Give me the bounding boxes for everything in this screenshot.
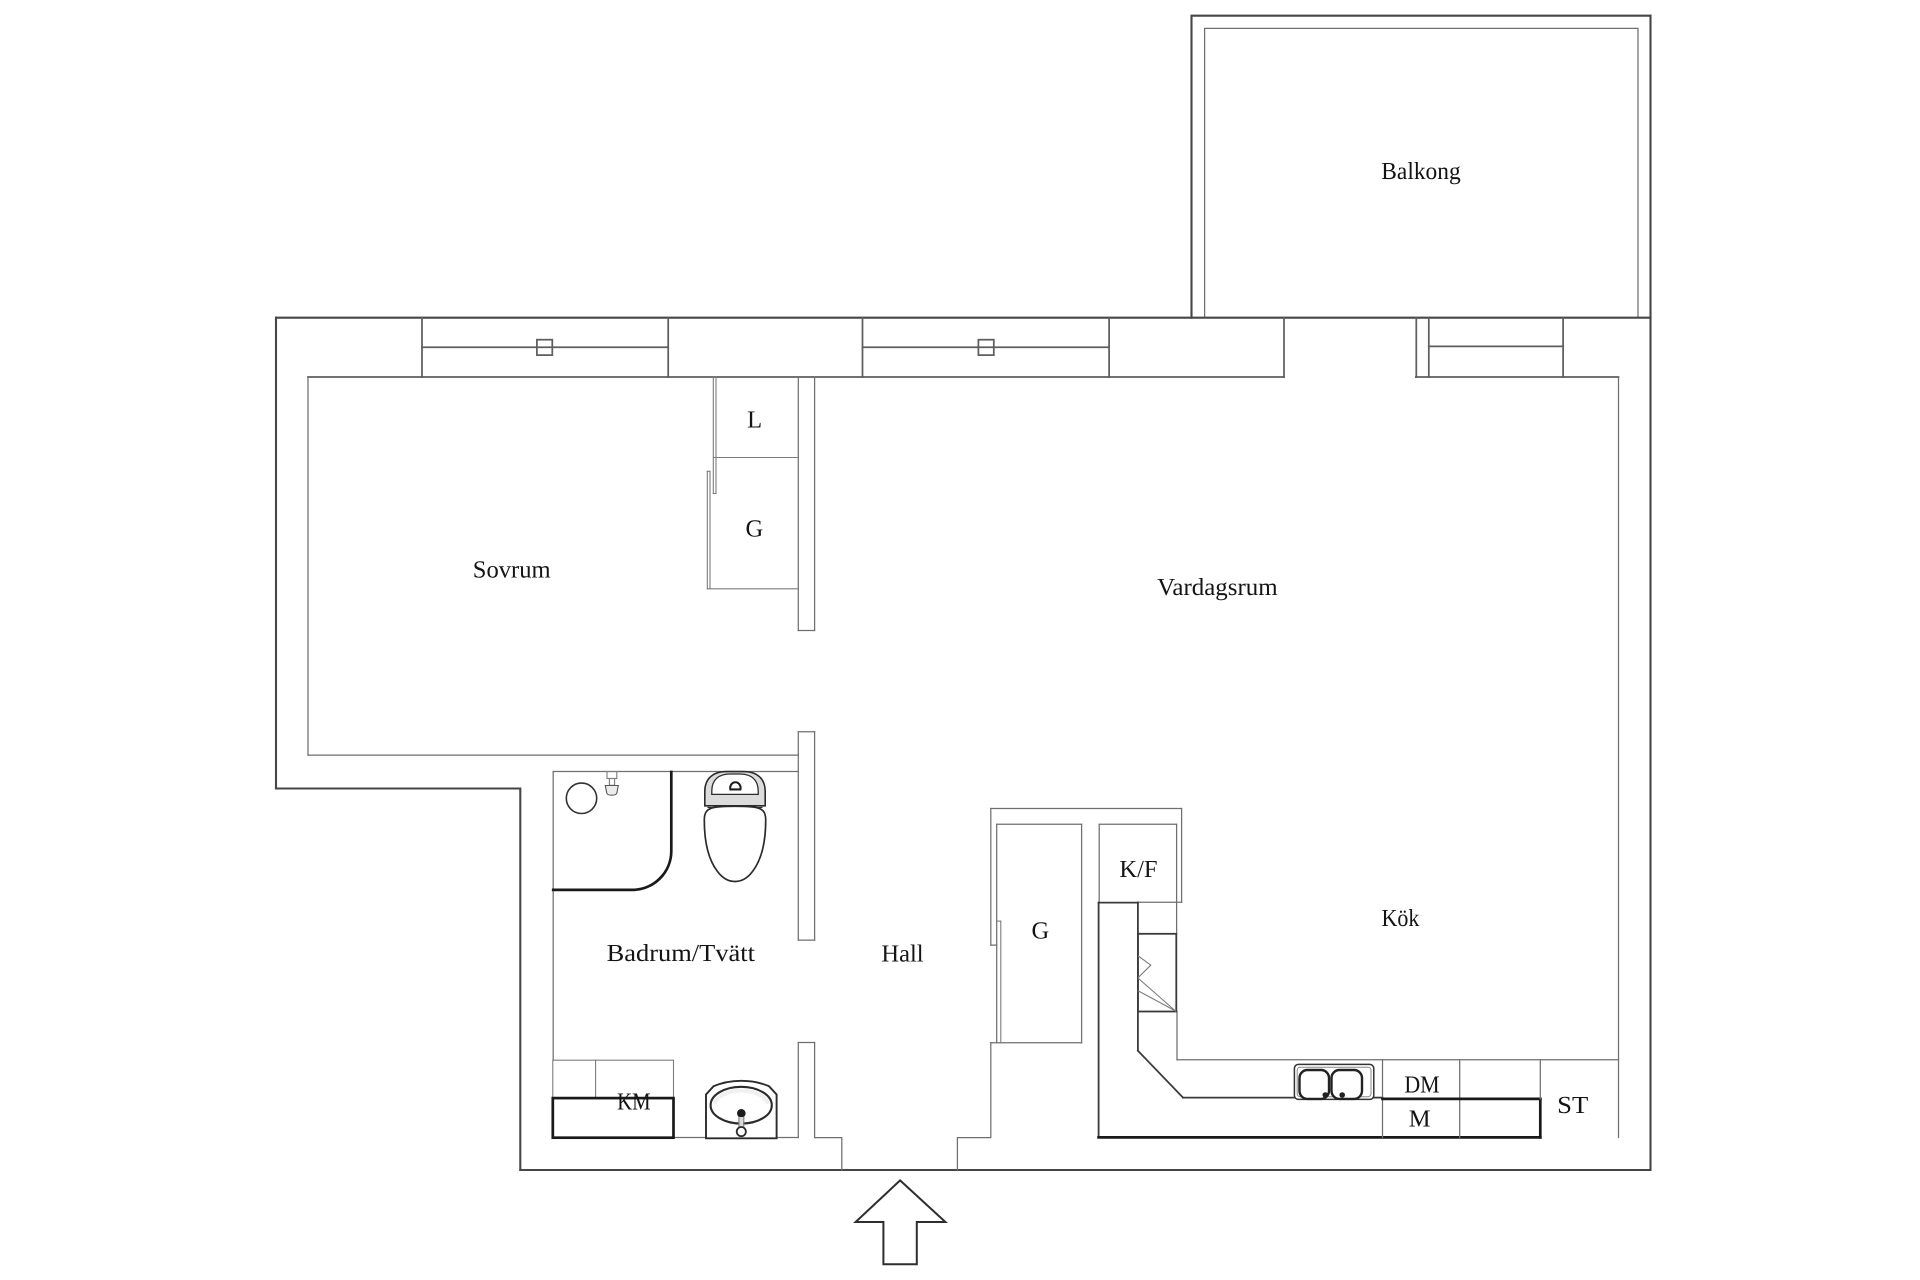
svg-text:Sovrum: Sovrum [473,557,551,584]
svg-text:DM: DM [1404,1072,1439,1099]
svg-text:Vardagsrum: Vardagsrum [1157,574,1278,601]
svg-text:Balkong: Balkong [1381,158,1460,185]
svg-text:L: L [747,407,762,434]
svg-text:KM: KM [617,1088,651,1115]
svg-text:G: G [746,515,764,542]
svg-text:K/F: K/F [1119,856,1157,883]
svg-text:Hall: Hall [881,941,923,968]
svg-text:Kök: Kök [1382,905,1421,932]
svg-text:G: G [1032,918,1050,945]
svg-text:Badrum/Tvätt: Badrum/Tvätt [607,940,756,967]
svg-text:ST: ST [1557,1092,1588,1119]
svg-text:M: M [1409,1106,1431,1133]
